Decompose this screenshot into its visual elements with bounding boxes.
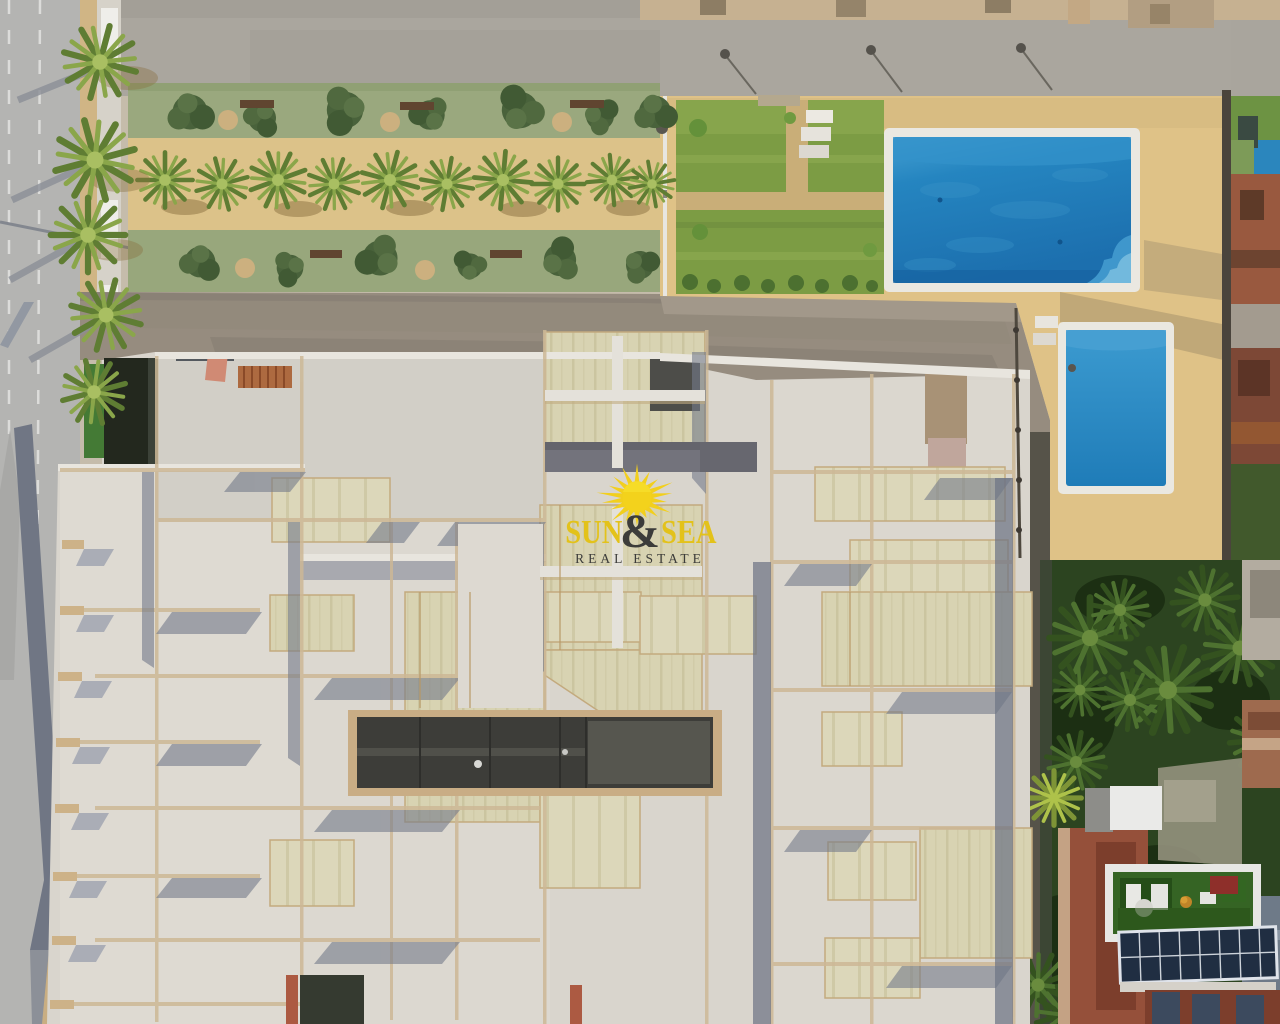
svg-text:SUN: SUN [565,513,622,551]
svg-text:REAL ESTATE: REAL ESTATE [575,551,705,566]
svg-text:SEA: SEA [661,513,717,551]
